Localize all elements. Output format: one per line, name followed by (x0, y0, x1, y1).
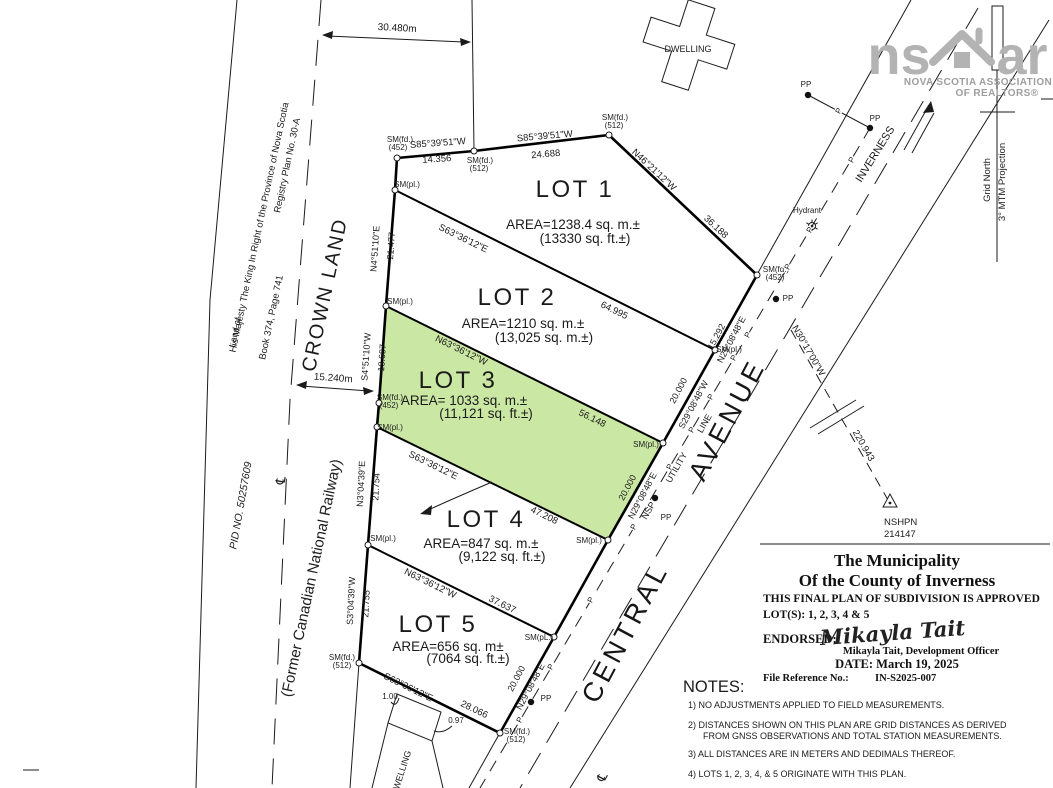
plan-label: 37.637 (487, 593, 518, 616)
plan-label: (512) (470, 164, 489, 173)
power-pole-dot (773, 296, 779, 302)
notes-heading: NOTES: (683, 678, 744, 696)
plan-label: ℄ (273, 474, 290, 486)
dwelling-wall (432, 741, 443, 788)
plan-label: PP (801, 80, 812, 89)
railway-boundary-extension (350, 663, 359, 788)
note-2: 2) DISTANCES SHOWN ON THIS PLAN ARE GRID… (688, 720, 1007, 730)
arrowhead (923, 101, 934, 113)
plan-label: P (629, 522, 639, 531)
halfwidth-dim-line (301, 386, 369, 391)
plan-label: P (805, 225, 815, 234)
plan-label: S63°36'12"E (437, 222, 490, 255)
plan-label: 21.477 (385, 232, 397, 260)
arrowhead (322, 31, 333, 39)
plan-label: PP (870, 114, 881, 123)
officer-name: Mikayla Tait, Development Officer (843, 646, 1000, 657)
lot-5-label: LOT 5 (399, 611, 478, 638)
owner-label: His Majesty The King In Right of the Pro… (228, 101, 292, 354)
power-pole-dot (867, 125, 873, 131)
crown-land-label: CROWN LAND (298, 216, 352, 374)
plan-label: P (729, 353, 739, 362)
plan-label: SM(pl.) (370, 534, 396, 543)
survey-marker (471, 148, 477, 154)
plan-label: (512) (333, 661, 352, 670)
plan-label: 14.356 (422, 153, 452, 166)
plan-label: 220.943 (850, 428, 877, 463)
note-2-cont: FROM GNSS OBSERVATIONS AND TOTAL STATION… (703, 731, 1002, 741)
dwelling-outline-bottom (372, 694, 443, 788)
survey-marker (606, 132, 612, 138)
approval-line: THIS FINAL PLAN OF SUBDIVISION IS APPROV… (763, 593, 1040, 605)
north-property-line (472, 0, 474, 151)
plan-label: N30°17'00"W (789, 324, 827, 378)
plan-label: (512) (507, 735, 526, 744)
survey-marker (754, 272, 760, 278)
plan-label: SM(pl.) (633, 440, 659, 449)
plan-label: SM(pl.) (377, 423, 403, 432)
plan-label: N63°36'12"W (402, 566, 458, 601)
survey-plan: S85°39'51"W14.356S85°39'51"W24.688N46°21… (0, 0, 1053, 788)
road-name-central: CENTRAL (576, 558, 675, 708)
survey-marker (356, 660, 362, 666)
control-monument-icon (883, 494, 897, 507)
pid-label: PID NO. 50257609 (227, 461, 254, 551)
lot-5-area-imperial: (7064 sq. ft.±) (426, 651, 509, 666)
arrowhead (363, 387, 374, 395)
arrow-line (912, 113, 934, 153)
road-name-inverness: INVERNESS (854, 124, 898, 184)
approved-lots-line: LOT(S): 1, 2, 3, 4 & 5 (763, 609, 870, 621)
plan-label: 18.697 (376, 344, 388, 372)
road-name-avenue: AVENUE (683, 354, 772, 486)
plan-label: PP (661, 513, 672, 522)
dwelling-top-label: DWELLING (664, 44, 711, 54)
book-page-label: Book 374, Page 741 (257, 274, 286, 361)
note-1: 1) NO ADJUSTMENTS APPLIED TO FIELD MEASU… (688, 700, 944, 710)
lot-3-label: LOT 3 (419, 367, 498, 394)
plan-label: P (706, 392, 716, 401)
file-ref-value: IN-S2025-007 (875, 673, 936, 684)
plan-label: SM(pl.) (394, 180, 420, 189)
plan-label: 64.995 (599, 299, 630, 322)
lot-2-label: LOT 2 (478, 284, 557, 311)
dwelling-wall (372, 723, 388, 788)
plan-label: ℄ (594, 770, 612, 786)
title-municipality: The Municipality (834, 551, 961, 570)
plan-label: S3°04'39"W (345, 576, 358, 625)
dwelling-bottom-label: DWELLING (389, 749, 413, 788)
house-body-icon (954, 52, 970, 68)
plan-label: Hydrant (793, 206, 822, 215)
plan-label: P (834, 106, 844, 115)
grid-north-label: Grid North (982, 158, 993, 202)
logo-subtitle-1: NOVA SCOTIA ASSOCIATION (904, 77, 1052, 88)
lot-1-area-imperial: (13330 sq. ft.±) (540, 231, 631, 246)
plan-label: N3°04'39"E (355, 461, 367, 508)
plan-label: SM(pl.) (387, 297, 413, 306)
note-3: 3) ALL DISTANCES ARE IN METERS AND DEDIM… (688, 749, 955, 759)
plan-label: S85°39'51"W (410, 136, 467, 151)
lot-2-area-imperial: (13,025 sq. m.±) (495, 330, 593, 345)
arrowhead (420, 505, 432, 515)
plan-label: PP (783, 294, 794, 303)
survey-marker (660, 440, 666, 446)
title-county: Of the County of Inverness (799, 571, 996, 590)
plan-label: SM(pL.) (525, 633, 554, 642)
plan-label: S4°51'10"W (359, 332, 372, 381)
realtor-logo-house-icon (933, 31, 991, 68)
survey-marker (394, 155, 400, 161)
lot-1-area-metric: AREA=1238.4 sq. m.± (506, 217, 640, 232)
plan-labels: S85°39'51"W14.356S85°39'51"W24.688N46°21… (227, 22, 1052, 788)
plan-label: (452) (380, 401, 399, 410)
plan-label: 1.00 (382, 692, 398, 701)
power-pole-dot (652, 495, 658, 501)
width-dim-line (327, 36, 464, 42)
power-pole-dot (805, 92, 811, 98)
arrowhead (460, 38, 471, 46)
plan-label: (452) (766, 273, 785, 282)
monument-number: 214147 (884, 529, 916, 540)
plan-label: P (546, 662, 556, 671)
lot-4-area-imperial: (9,122 sq. ft.±) (459, 549, 546, 564)
plan-label: P (743, 330, 753, 339)
survey-marker (605, 537, 611, 543)
survey-marker (497, 730, 503, 736)
plan-label: (512) (605, 121, 624, 130)
lot-3-area-imperial: (11,121 sq. ft.±) (439, 406, 532, 421)
plan-label: (452) (389, 143, 408, 152)
file-ref-label: File Reference No.: (763, 673, 849, 684)
lot-4-label: LOT 4 (447, 506, 526, 533)
plan-label: 24.688 (531, 148, 561, 161)
logo-subtitle-2: OF REALTORS® (956, 88, 1039, 99)
approval-date: DATE: March 19, 2025 (835, 657, 959, 671)
arrowhead (296, 381, 307, 389)
survey-plan-canvas: S85°39'51"W14.356S85°39'51"W24.688N46°21… (0, 0, 1053, 788)
plan-label: P (586, 595, 596, 604)
plan-label: P (515, 715, 525, 724)
plan-label: PP (541, 694, 552, 703)
lot-2-area-metric: AREA=1210 sq. m.± (462, 316, 585, 331)
projection-label: 3° MTM Projection (997, 143, 1008, 221)
plan-label: N4°51'10"E (368, 225, 381, 272)
plan-label: N46°21'12"W (629, 147, 678, 194)
railway-west-boundary-line (196, 0, 237, 788)
plan-label: SM(pl.) (576, 536, 602, 545)
monument-label: NSHPN (884, 517, 917, 528)
railway-width-dim: 30.480m (377, 22, 416, 35)
plan-label: 0.97 (448, 716, 464, 725)
plan-label: P (847, 155, 857, 164)
plan-label: 21.755 (360, 590, 371, 618)
plan-label: 21.754 (370, 473, 381, 501)
plan-label: SM(pl.) (716, 345, 742, 354)
lot-1-label: LOT 1 (536, 176, 615, 203)
note-4: 4) LOTS 1, 2, 3, 4, & 5 ORIGINATE WITH T… (688, 769, 906, 779)
control-monument-dot (889, 502, 892, 505)
